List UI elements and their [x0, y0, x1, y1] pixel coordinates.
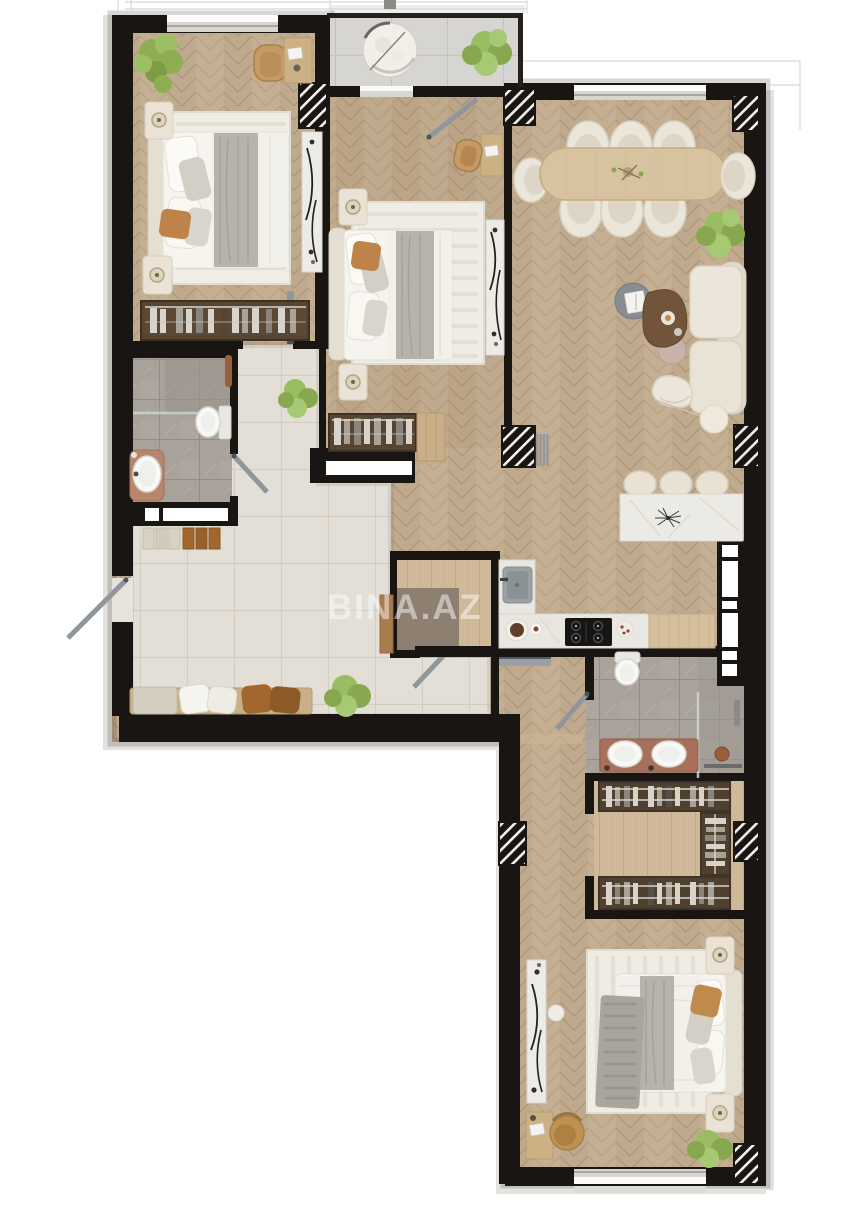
- svg-text:BINA.AZ: BINA.AZ: [327, 588, 483, 627]
